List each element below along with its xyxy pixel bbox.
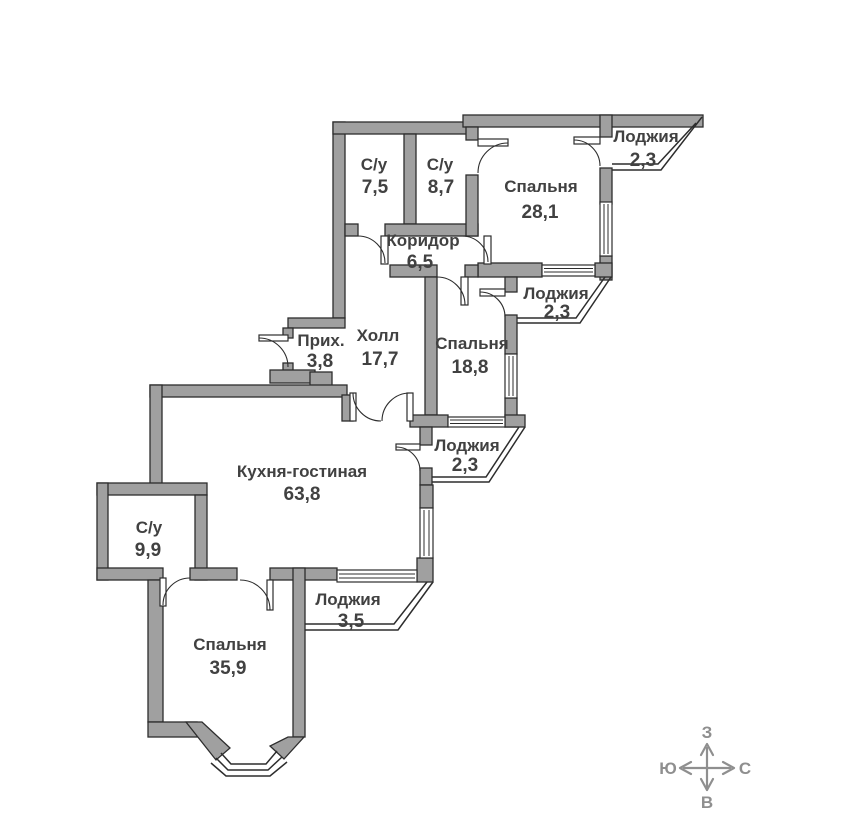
room-label-loggia-top-name: Лоджия (613, 127, 678, 146)
room-label-loggia-mid-area: 2,3 (544, 302, 570, 323)
room-label-entry-area: 3,8 (307, 351, 333, 372)
compass-label-bottom: В (701, 793, 713, 812)
door-leaf (478, 139, 508, 146)
compass-rose: З Ю С В (659, 723, 751, 812)
room-label-bedroom359-area: 35,9 (210, 658, 247, 679)
room-label-kitchen-area: 63,8 (284, 484, 321, 505)
room-label-su75-name: С/у (361, 155, 388, 174)
room-label-loggia-top-area: 2,3 (630, 150, 656, 171)
room-label-hall-name: Холл (357, 326, 400, 345)
compass-label-top: З (702, 723, 713, 742)
compass-label-left: Ю (659, 759, 677, 778)
room-label-entry-name: Прих. (297, 331, 344, 350)
room-label-loggia-mid-name: Лоджия (523, 284, 588, 303)
room-label-su99-name: С/у (136, 518, 163, 537)
room-label-corridor-name: Коридор (386, 231, 459, 250)
windows (337, 202, 612, 582)
room-label-kitchen-name: Кухня-гостиная (237, 462, 367, 481)
room-label-corridor-area: 6,5 (407, 252, 434, 273)
room-label-bedroom281-area: 28,1 (522, 202, 559, 223)
room-label-loggia35-area: 3,5 (338, 611, 365, 632)
room-label-hall-area: 17,7 (362, 349, 399, 370)
door-leaf (407, 393, 413, 421)
room-label-bedroom281-name: Спальня (504, 177, 577, 196)
room-label-loggia-kitchen-area: 2,3 (452, 455, 478, 476)
room-label-bedroom188-name: Спальня (435, 334, 508, 353)
floor-plan-svg: С/у 7,5 С/у 8,7 Спальня 28,1 Лоджия 2,3 … (0, 0, 851, 827)
room-label-loggia35-name: Лоджия (315, 590, 380, 609)
room-label-su99-area: 9,9 (135, 540, 161, 561)
room-label-su87-area: 8,7 (428, 177, 454, 198)
room-label-su75-area: 7,5 (362, 177, 389, 198)
compass-label-right: С (739, 759, 751, 778)
room-label-loggia-kitchen-name: Лоджия (434, 436, 499, 455)
room-label-su87-name: С/у (427, 155, 454, 174)
floor-plan-page: С/у 7,5 С/у 8,7 Спальня 28,1 Лоджия 2,3 … (0, 0, 851, 827)
room-label-bedroom359-name: Спальня (193, 635, 266, 654)
room-label-bedroom188-area: 18,8 (452, 357, 489, 378)
